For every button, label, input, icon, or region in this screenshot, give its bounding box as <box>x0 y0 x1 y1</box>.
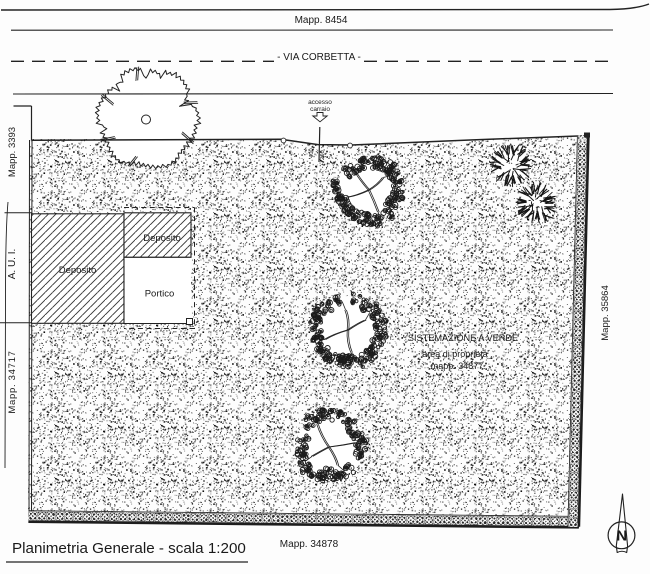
svg-text:Portico: Portico <box>145 289 175 300</box>
svg-text:N: N <box>616 528 627 545</box>
svg-text:Mapp. 3393: Mapp. 3393 <box>7 127 18 177</box>
svg-text:Deposito: Deposito <box>143 233 181 244</box>
svg-text:Mapp. 35864: Mapp. 35864 <box>600 285 611 340</box>
svg-text:SISTEMAZIONE A VERDE: SISTEMAZIONE A VERDE <box>408 333 518 343</box>
svg-text:Deposito: Deposito <box>59 265 97 276</box>
svg-text:area di proprietà: area di proprietà <box>422 349 488 359</box>
svg-text:400: 400 <box>309 148 315 158</box>
svg-text:mapp. 34877: mapp. 34877 <box>431 361 484 371</box>
svg-text:accesso: accesso <box>308 99 332 106</box>
svg-text:carraio: carraio <box>310 106 330 113</box>
svg-text:Mapp. 34717: Mapp. 34717 <box>7 350 18 413</box>
svg-text:Mapp. 34878: Mapp. 34878 <box>280 539 339 550</box>
svg-text:Planimetria Generale - scala 1: Planimetria Generale - scala 1:200 <box>12 540 246 557</box>
svg-text:Mapp. 8454: Mapp. 8454 <box>295 15 348 26</box>
svg-text:A. U. I.: A. U. I. <box>7 249 18 280</box>
svg-text:- VIA CORBETTA -: - VIA CORBETTA - <box>277 52 361 63</box>
svg-text:260: 260 <box>320 150 326 160</box>
